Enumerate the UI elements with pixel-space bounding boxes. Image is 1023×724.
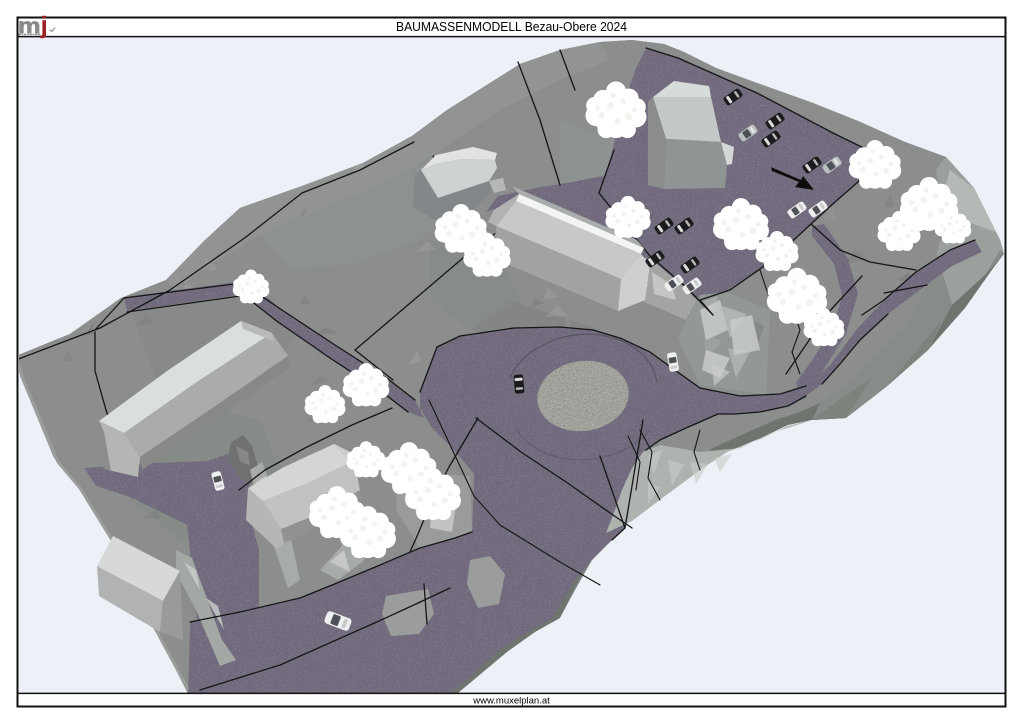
svg-text:BAUMASSENMODELL Bezau-Obere 20: BAUMASSENMODELL Bezau-Obere 2024: [396, 19, 627, 34]
svg-text:j: j: [40, 12, 47, 38]
svg-text:www.muxelplan.at: www.muxelplan.at: [472, 696, 550, 707]
